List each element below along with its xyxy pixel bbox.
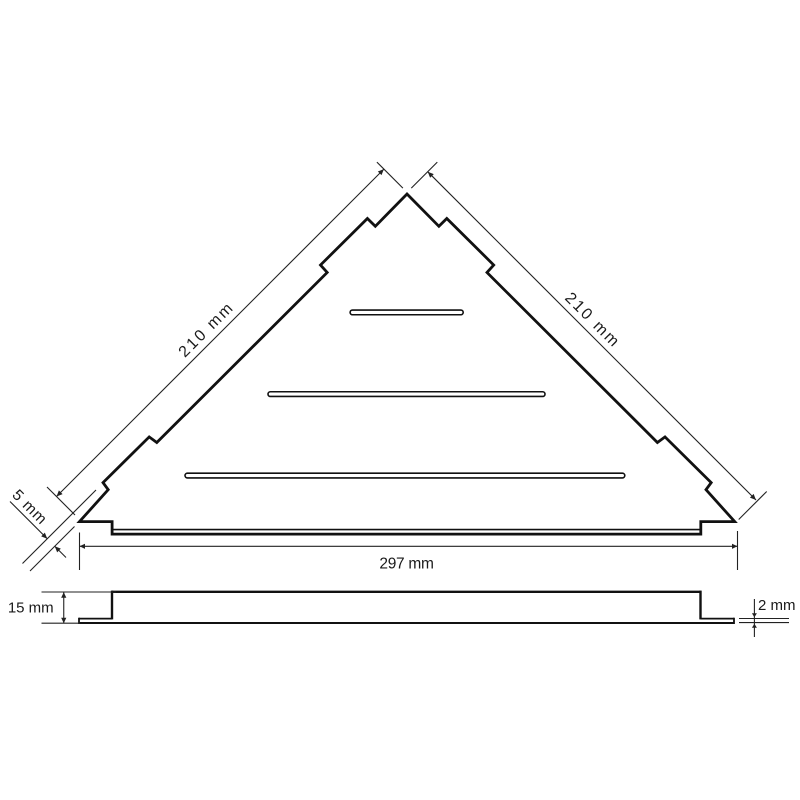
svg-text:297 mm: 297 mm [379, 555, 433, 572]
svg-text:15 mm: 15 mm [8, 600, 54, 617]
svg-text:2 mm: 2 mm [758, 597, 796, 614]
